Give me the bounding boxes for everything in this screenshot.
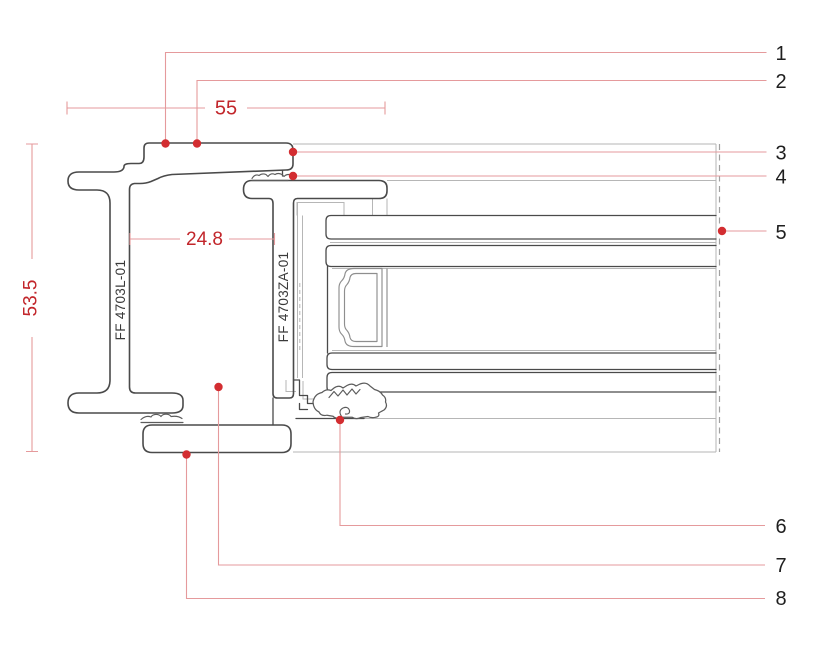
- top-gasket-squiggle: [252, 174, 293, 179]
- frame-profile: [68, 143, 293, 453]
- callout-1: 1: [161, 43, 786, 148]
- sash-profile-label: FF 4703ZA-01: [276, 252, 291, 343]
- callout-1-dot: [161, 139, 169, 147]
- callout-1-leader: [166, 53, 767, 144]
- callout-7-dot: [214, 383, 222, 391]
- callout-4-number: 4: [776, 167, 787, 189]
- panel-bar-3: [327, 353, 716, 370]
- callout-7: 7: [214, 383, 786, 577]
- dim-cavity-value: 24.8: [186, 229, 223, 250]
- callout-8: 8: [182, 450, 786, 610]
- dimension-cavity: 24.8: [130, 229, 275, 250]
- callout-3: 3: [289, 143, 787, 165]
- callout-2-number: 2: [776, 71, 787, 93]
- callout-2-dot: [193, 139, 201, 147]
- frame-bottom-step-hidden: [286, 380, 296, 392]
- frame-bottom-piece: [143, 425, 291, 453]
- bead-top-tab: [297, 203, 313, 216]
- dimension-height: 53.5: [21, 144, 42, 452]
- callout-6-dot: [336, 416, 344, 424]
- bottom-gasket-body: [313, 383, 386, 418]
- door-panel: [326, 216, 716, 393]
- callout-8-dot: [182, 450, 190, 458]
- bottom-brush-seal-top: [141, 414, 182, 419]
- panel-bar-2: [326, 246, 716, 267]
- callout-5-number: 5: [776, 222, 787, 244]
- callout-7-leader: [219, 387, 766, 565]
- technical-drawing: 55 24.8 53.5 FF 4703L-01 FF 4703ZA-01 1 …: [0, 0, 840, 657]
- panel-bar-4: [327, 373, 716, 393]
- frame-profile-label: FF 4703L-01: [113, 260, 128, 341]
- callout-8-number: 8: [776, 588, 787, 610]
- panel-bar-1: [326, 216, 716, 240]
- callout-5: 5: [718, 222, 787, 244]
- callout-6: 6: [336, 416, 787, 538]
- callout-6-number: 6: [776, 516, 787, 538]
- callout-3-number: 3: [776, 143, 787, 165]
- callout-8-leader: [187, 455, 766, 599]
- callout-5-dot: [718, 227, 726, 235]
- callout-7-number: 7: [776, 555, 787, 577]
- callout-2: 2: [193, 71, 787, 148]
- drawing-canvas: 55 24.8 53.5 FF 4703L-01 FF 4703ZA-01 1 …: [0, 0, 840, 657]
- callout-2-leader: [197, 81, 767, 144]
- sash-bead-step-lower: [300, 404, 308, 410]
- panel-molding-outer: [339, 269, 382, 347]
- callout-1-number: 1: [776, 43, 787, 65]
- callout-3-dot: [289, 148, 297, 156]
- bead-top-step: [313, 203, 344, 216]
- dimension-width: 55: [67, 98, 385, 120]
- callout-6-leader: [340, 420, 765, 526]
- callout-4-dot: [289, 172, 297, 180]
- callout-4: 4: [289, 167, 787, 189]
- dim-width-value: 55: [215, 98, 237, 120]
- frame-profile-outline: [68, 143, 293, 413]
- dim-height-value: 53.5: [21, 280, 42, 317]
